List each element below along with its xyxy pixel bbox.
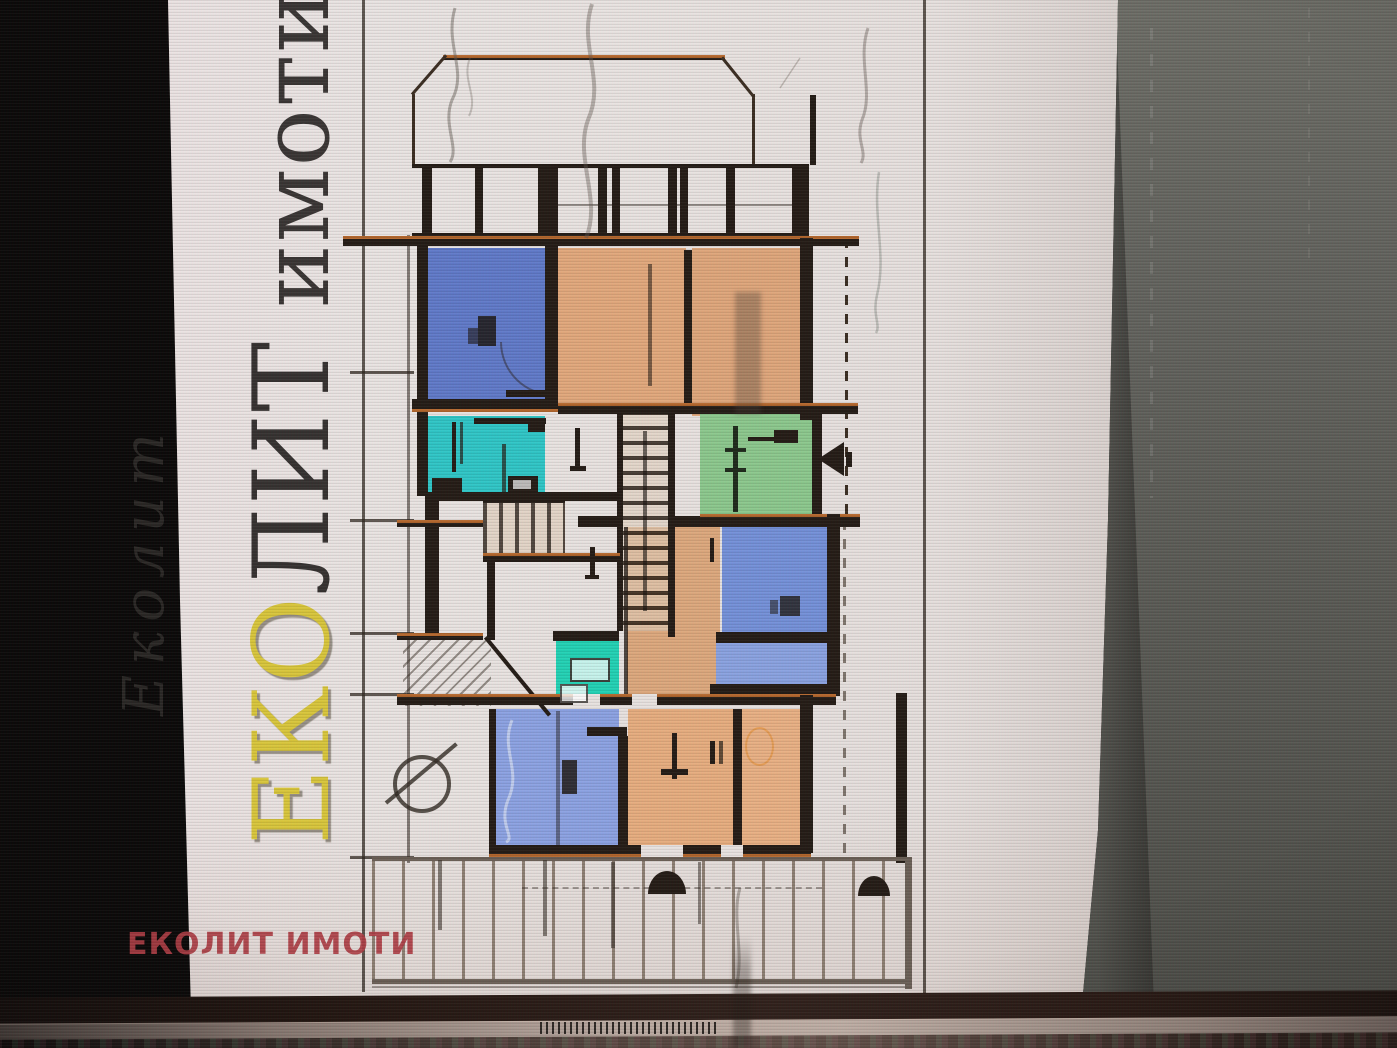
watermark-brand-suffix: имоти [241, 0, 351, 340]
ghost-handwriting-marks [0, 0, 1397, 1048]
photo-smudge [733, 936, 751, 1048]
watermark-brand-dark: ЛИТ [231, 340, 353, 595]
watermark-ghost-script: Еколит [112, 423, 177, 716]
photo-of-floor-plan: Еколит ЕКОЛИТ имоти ЕКОЛИТ ИМОТИ [0, 0, 1397, 1048]
scale-tick-marks [540, 1022, 718, 1034]
watermark-vertical-brand: ЕКОЛИТ имоти [240, 0, 345, 845]
watermark-footer-red: ЕКОЛИТ ИМОТИ [127, 927, 417, 962]
watermark-brand-gold: ЕКО [231, 595, 353, 845]
